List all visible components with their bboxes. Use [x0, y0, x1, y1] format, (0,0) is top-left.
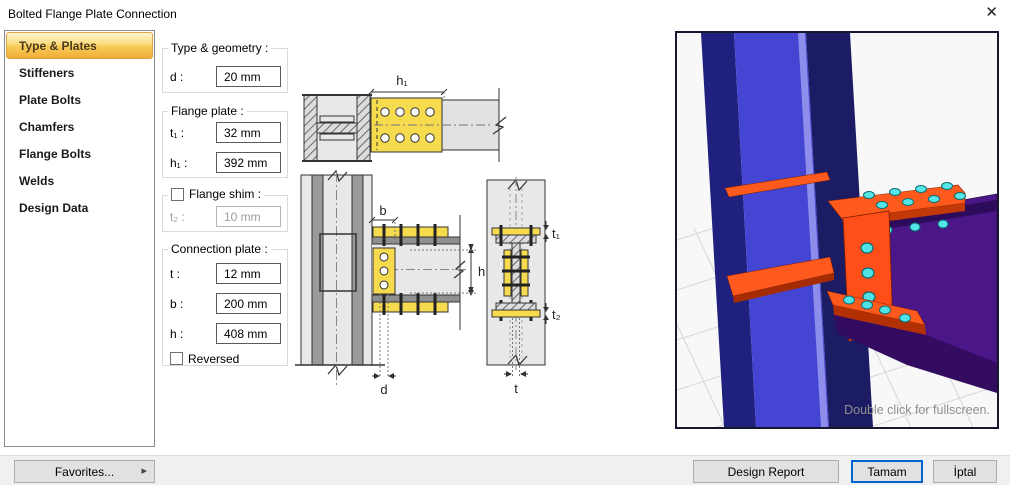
favorites-arrow-icon: ▸: [141, 464, 147, 477]
bolted-flange-plate-connection-dialog: { "window": { "title": "Bolted Flange Pl…: [0, 0, 1010, 485]
preview-3d-viewport[interactable]: Double click for fullscreen.: [675, 31, 999, 429]
h-input[interactable]: 408 mm: [216, 323, 281, 344]
fullscreen-hint: Double click for fullscreen.: [844, 403, 990, 417]
t2-input: 10 mm: [216, 206, 281, 227]
t-label: t :: [170, 267, 212, 281]
dim-label-d: d: [380, 382, 387, 397]
close-icon[interactable]: ✕: [985, 4, 998, 22]
group-connection-plate: Connection plate : t : 12 mm b : 200 mm …: [162, 249, 288, 366]
sidebar-item-chamfers[interactable]: Chamfers: [6, 113, 153, 140]
group-flange-shim-header: Flange shim :: [168, 187, 264, 201]
h1-input[interactable]: 392 mm: [216, 152, 281, 173]
preview-3d-render: Double click for fullscreen.: [677, 33, 997, 427]
d-input[interactable]: 20 mm: [216, 66, 281, 87]
reversed-checkbox[interactable]: [170, 352, 183, 365]
group-flange-shim-title: Flange shim :: [189, 187, 261, 201]
reversed-label: Reversed: [188, 352, 239, 366]
dim-label-h1: h₁: [396, 73, 408, 88]
sidebar-item-design-data[interactable]: Design Data: [6, 194, 153, 221]
group-flange-shim: Flange shim : t₂ : 10 mm: [162, 195, 288, 232]
sidebar-item-flange-bolts[interactable]: Flange Bolts: [6, 140, 153, 167]
cancel-button[interactable]: İptal: [933, 460, 997, 483]
group-flange-plate-title: Flange plate :: [168, 104, 247, 118]
sidebar-item-plate-bolts[interactable]: Plate Bolts: [6, 86, 153, 113]
design-report-button[interactable]: Design Report: [693, 460, 839, 483]
b-label: b :: [170, 297, 212, 311]
h-label: h :: [170, 327, 212, 341]
favorites-button[interactable]: Favorites... ▸: [14, 460, 155, 483]
footer-bar: Favorites... ▸ Design Report Tamam İptal: [0, 455, 1010, 485]
dialog-titlebar: Bolted Flange Plate Connection ✕: [0, 0, 1010, 28]
dim-label-h: h: [478, 264, 485, 279]
group-type-geometry: Type & geometry : d : 20 mm: [162, 48, 288, 93]
dim-label-b: b: [379, 203, 386, 218]
plan-view: [302, 88, 506, 162]
sidebar-item-type-plates[interactable]: Type & Plates: [6, 32, 153, 59]
dim-label-t1: t₁: [552, 226, 561, 241]
flange-shim-checkbox[interactable]: [171, 188, 184, 201]
d-label: d :: [170, 70, 212, 84]
connection-diagram: h₁: [290, 38, 602, 412]
group-flange-plate: Flange plate : t₁ : 32 mm h₁ : 392 mm: [162, 111, 288, 178]
t1-label: t₁ :: [170, 126, 212, 140]
h1-label: h₁ :: [170, 156, 212, 170]
sidebar: Type & Plates Stiffeners Plate Bolts Cha…: [4, 30, 155, 447]
dim-label-t2: t₂: [552, 307, 561, 322]
section-view: [487, 177, 549, 378]
group-type-geometry-title: Type & geometry :: [168, 41, 271, 55]
b-input[interactable]: 200 mm: [216, 293, 281, 314]
group-connection-plate-title: Connection plate :: [168, 242, 271, 256]
t-input[interactable]: 12 mm: [216, 263, 281, 284]
ok-button[interactable]: Tamam: [851, 460, 923, 483]
dialog-title: Bolted Flange Plate Connection: [8, 7, 177, 21]
sidebar-item-welds[interactable]: Welds: [6, 167, 153, 194]
sidebar-item-stiffeners[interactable]: Stiffeners: [6, 59, 153, 86]
t1-input[interactable]: 32 mm: [216, 122, 281, 143]
dim-label-t: t: [514, 381, 518, 396]
t2-label: t₂ :: [170, 210, 212, 224]
